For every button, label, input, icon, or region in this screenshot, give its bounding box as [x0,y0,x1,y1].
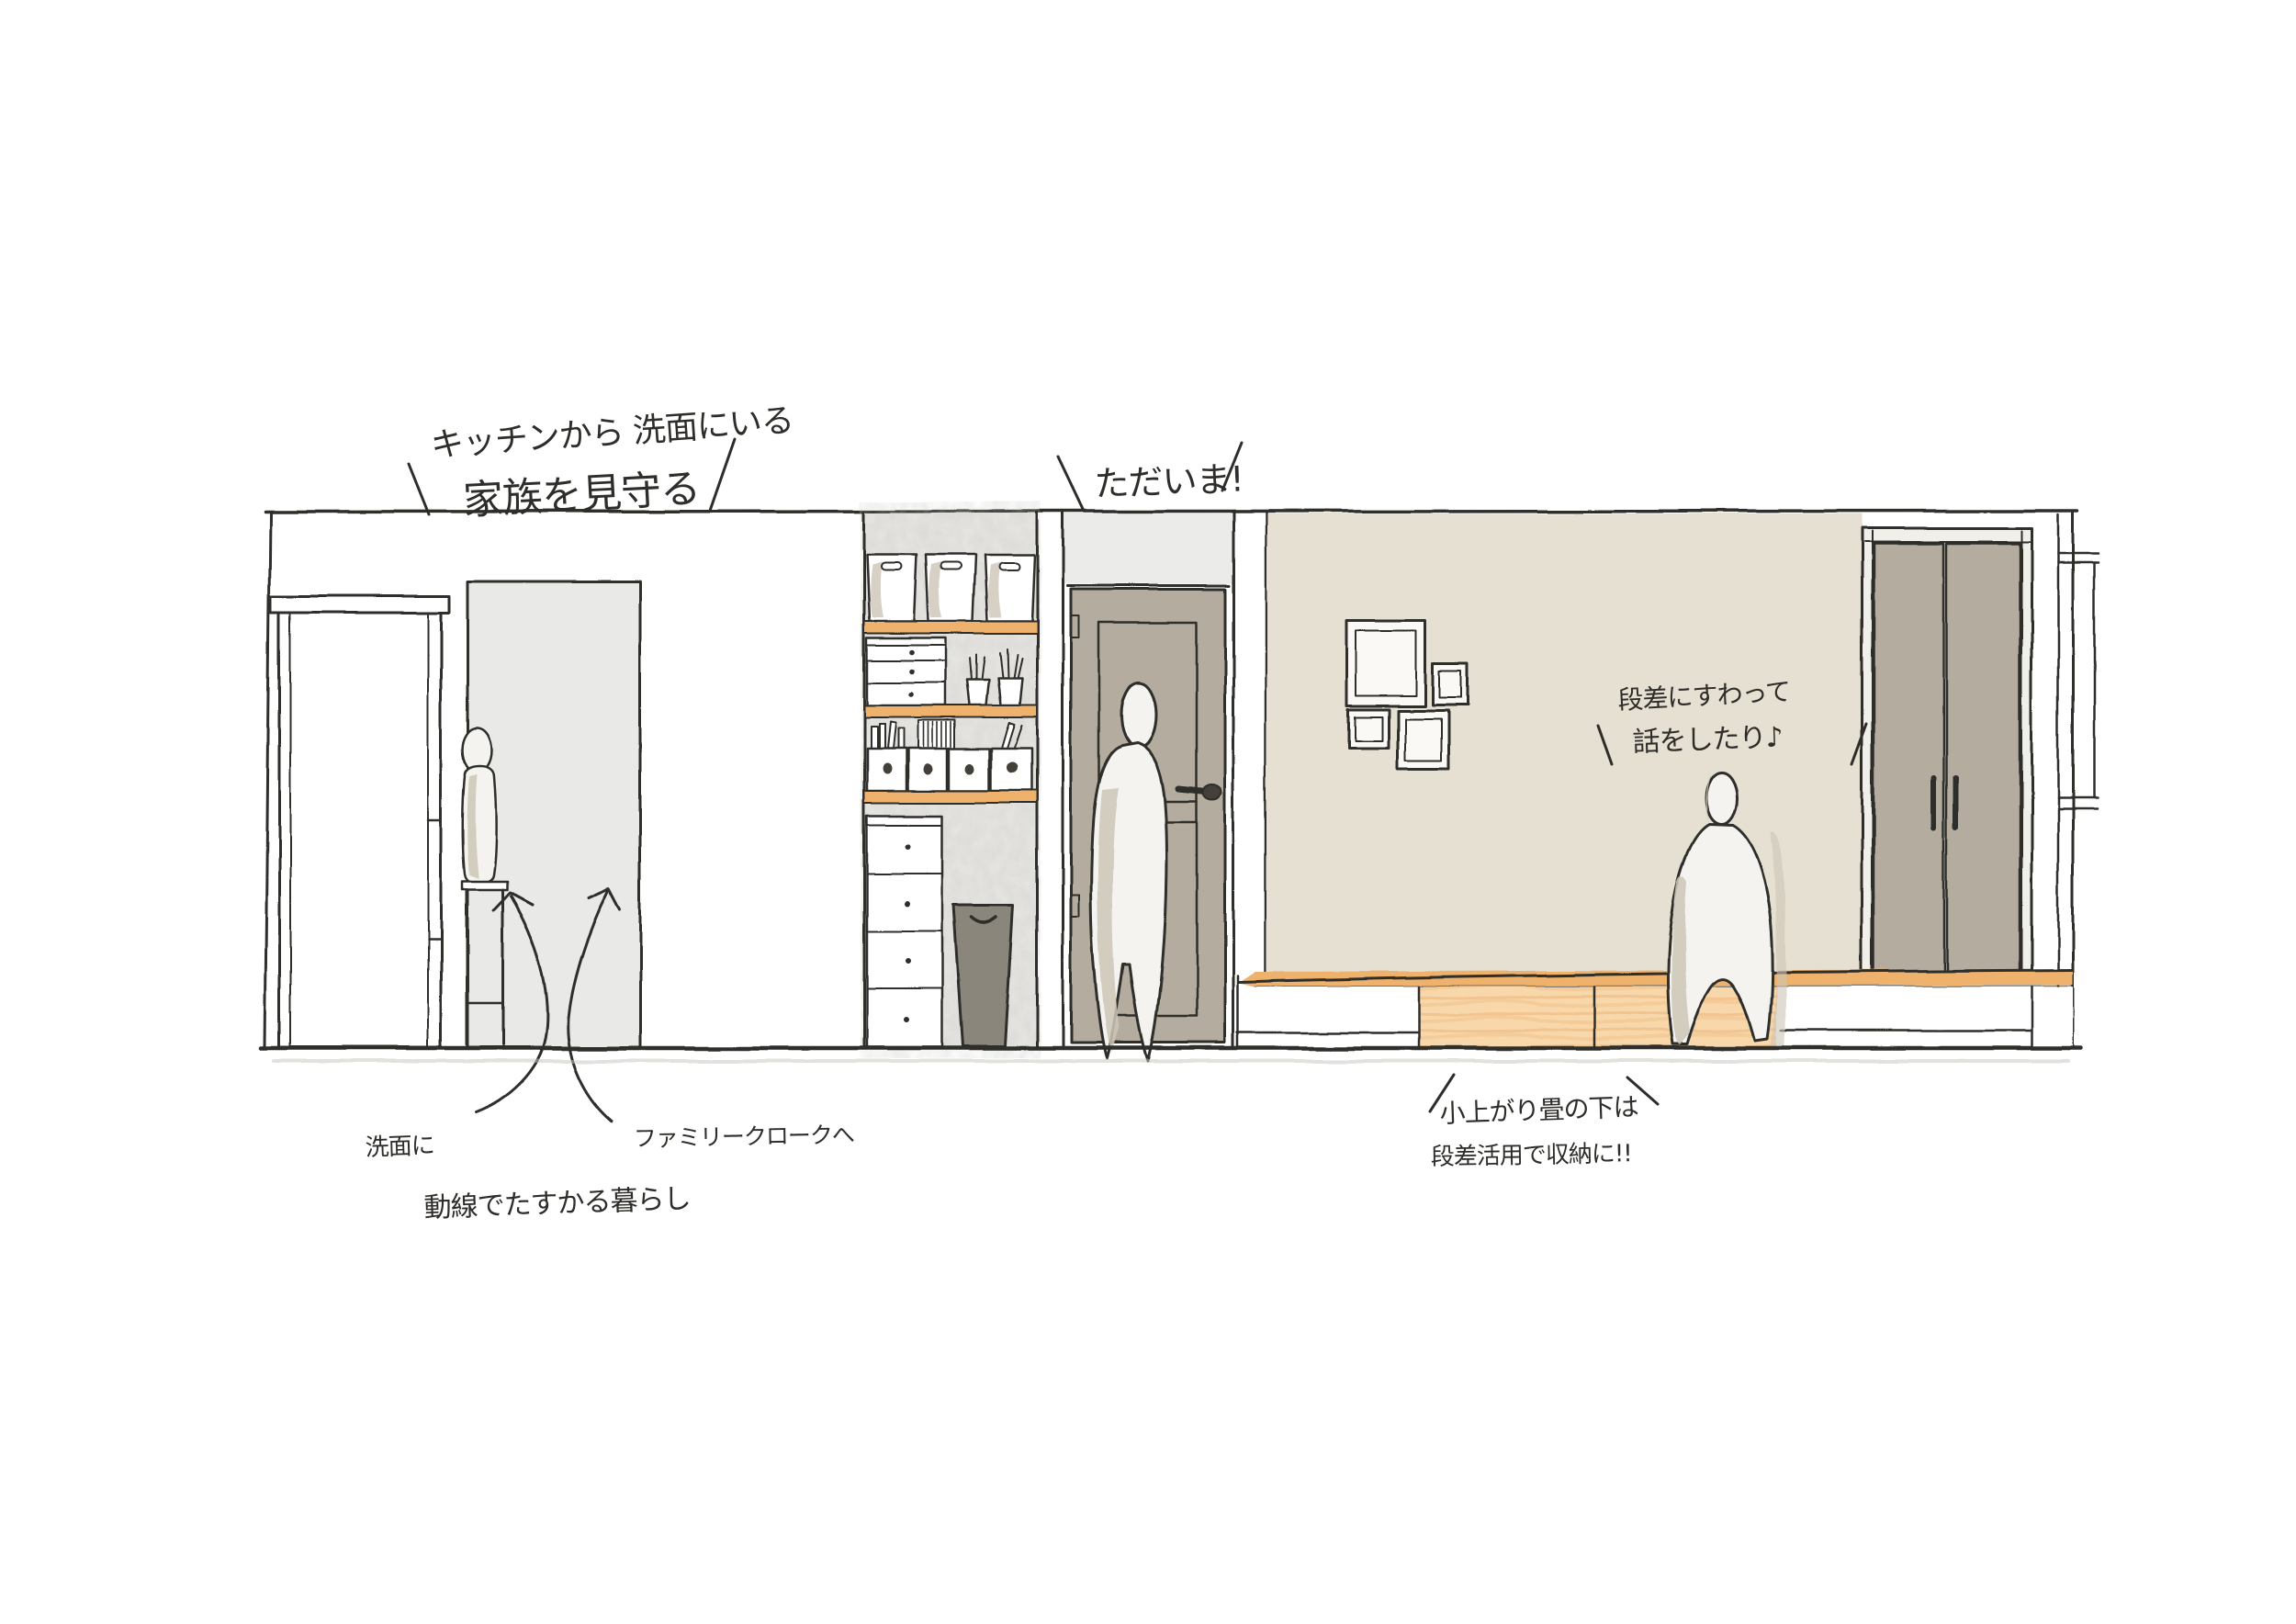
annotation-family-cloak-text: ファミリークロークへ [634,1122,854,1152]
washroom-door [279,613,441,1047]
tatami-platform [1237,969,2073,1047]
finger-hole [883,763,892,774]
stool-seat [462,882,507,890]
annotation-tatami-storage: 小上がり畳の下は 段差活用で収納に!! [1430,1075,1658,1171]
platform-drawer-white [1777,987,2073,1047]
bin-handle-slot [940,563,961,570]
book-spine [879,724,884,749]
chest-knob [908,692,914,697]
annotation-flow-caption: 動線でたすかる暮らし [423,1183,691,1224]
bin-handle-slot [882,563,902,570]
drawer-knob [905,1017,910,1022]
emphasis-slash-right [710,439,735,511]
washroom-wall [271,581,640,1122]
annotation-washroom-label: 洗面に [365,1132,434,1162]
annotation-step-sit-line2: 話をしたり♪ [1632,721,1783,759]
annotation-tatami-line2: 段差活用で収納に!! [1431,1140,1632,1171]
shelf-board [864,705,1037,717]
person-head [1705,773,1737,825]
file-boxes-row [867,749,1031,791]
shelf-board [864,791,1037,803]
annotation-washroom-text: 洗面に [365,1132,434,1162]
washroom-door-lintel [271,596,449,613]
annotation-greeting-text: ただいま! [1094,458,1244,504]
platform-storage-wood [1420,987,1777,1047]
drawer-knob [905,844,910,850]
chest-knob [908,649,914,655]
closet [1862,528,2032,976]
waste-bin-body [953,905,1013,1046]
chest-body [867,637,946,705]
platform-face-white-left [1237,987,1419,1047]
closet-door-left [1874,544,1944,972]
ledge-top-bars [2058,554,2098,563]
finger-hole [1007,762,1018,773]
emphasis-slash-left [409,464,429,514]
person-head [1121,683,1156,748]
waste-bin [953,905,1013,1046]
picture-frame-small [1433,663,1468,705]
finger-hole [924,763,933,774]
picture-frame-large [1347,621,1425,705]
book-spine [898,728,904,749]
platform-edge-underline [1255,986,2073,987]
drawer-knob [905,901,910,907]
closet-door-right [1947,544,2020,972]
finger-hole [965,763,974,774]
drawer-knob [905,958,910,964]
annotation-kitchen-watch: キッチンから 洗面にいる 家族を見守る [409,401,794,524]
wall-left-edge [264,513,270,1047]
mini-drawer-chest [867,637,946,705]
door-transom-panel [1064,513,1232,583]
book-stack-spines [924,722,951,747]
ledge-bottom-bars [2058,797,2098,808]
pen-cup [998,678,1022,705]
emphasis-slash-left [1058,457,1084,511]
annotation-flow-text: 動線でたすかる暮らし [423,1183,691,1224]
tall-drawer-unit [867,816,942,1047]
sketch-canvas: キッチンから 洗面にいる 家族を見守る ただいま! 段差にすわって 話をしたり♪… [0,0,2296,1624]
door-handle-base [1203,784,1221,799]
hallway-door [1063,512,1233,1061]
elevation-sketch [261,511,2098,1122]
annotation-kitchen-watch-line2: 家族を見守る [462,466,701,524]
pen-cup [967,680,989,705]
bin-handle-slot [999,563,1019,570]
annotation-greeting: ただいま! [1058,443,1244,511]
chest-knob [908,669,914,674]
book-spine [871,727,877,749]
living-wall [1237,513,2098,1047]
annotation-tatami-line1: 小上がり畳の下は [1439,1091,1638,1129]
storage-shelf-unit [864,513,1037,1047]
annotation-kitchen-watch-line1: キッチンから 洗面にいる [430,401,794,464]
annotation-family-cloak-label: ファミリークロークへ [634,1122,854,1152]
storage-bins-row [867,555,1034,621]
shelf-board [864,621,1037,633]
wall-side-ledge [2058,554,2098,808]
